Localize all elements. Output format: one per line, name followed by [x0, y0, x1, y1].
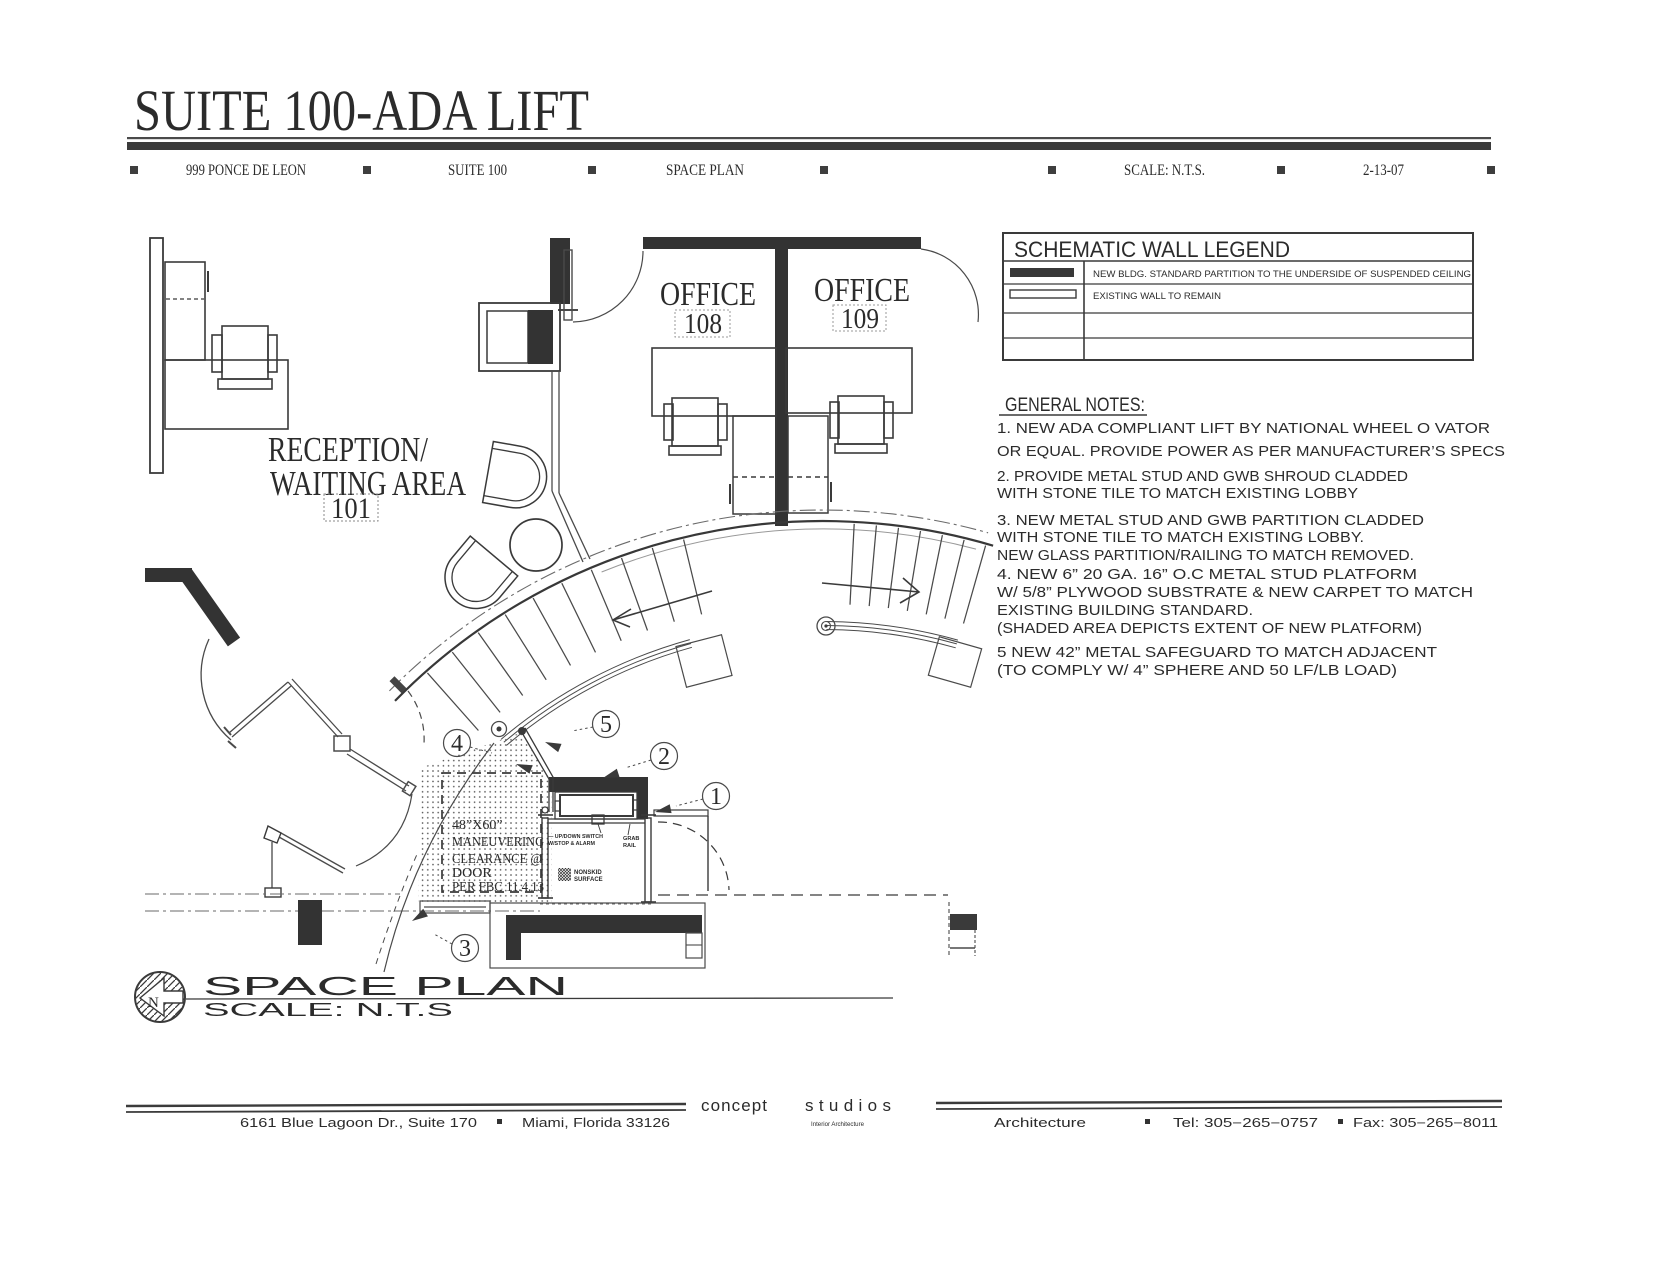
svg-text:WITH STONE TILE TO MATCH: WITH STONE TILE TO MATCH EXISTING LOBBY [997, 486, 1358, 502]
svg-text:2-13-07: 2-13-07 [1363, 162, 1404, 179]
svg-text:3: 3 [459, 936, 471, 962]
svg-text:RAIL: RAIL [623, 843, 637, 849]
svg-text:101: 101 [331, 492, 371, 525]
svg-text:SPACE PLAN: SPACE PLAN [666, 162, 744, 179]
svg-text:Tel: 305−265−0757: Tel: 305−265−0757 [1173, 1116, 1318, 1130]
svg-text:PER FBC 11.4.13: PER FBC 11.4.13 [452, 880, 544, 895]
svg-text:W/STOP & ALARM: W/STOP & ALARM [548, 841, 595, 847]
svg-text:Interior Architecture: Interior Architecture [811, 1121, 864, 1128]
svg-text:(SHADED AREA DEPICTS EXTENT: (SHADED AREA DEPICTS EXTENT OF NEW PLATF… [997, 621, 1422, 637]
svg-text:999 PONCE DE LEON: 999 PONCE DE LEON [186, 162, 306, 179]
svg-text:W/ 5/8” PLYWOOD SUBSTRATE: W/ 5/8” PLYWOOD SUBSTRATE & NEW CARPET T… [997, 585, 1473, 601]
svg-text:concept: concept [701, 1096, 771, 1115]
svg-text:OR EQUAL. PROVIDE POWER AS: OR EQUAL. PROVIDE POWER AS PER MANUFACTU… [997, 444, 1505, 460]
svg-text:SUITE 100: SUITE 100 [448, 162, 507, 179]
svg-text:108: 108 [684, 308, 722, 340]
svg-text:2: 2 [658, 744, 670, 770]
svg-text:SURFACE: SURFACE [574, 877, 603, 883]
svg-text:WITH STONE TILE TO MATCH: WITH STONE TILE TO MATCH EXISTING LOBBY. [997, 530, 1364, 546]
svg-text:NONSKID: NONSKID [574, 870, 602, 876]
svg-text:SUITE 100-ADA LIFT: SUITE 100-ADA LIFT [134, 78, 589, 143]
svg-text:2. PROVIDE METAL STUD AN: 2. PROVIDE METAL STUD AND GWB SHROUD CLA… [997, 469, 1408, 485]
svg-text:EXISTING BUILDING STANDARD.: EXISTING BUILDING STANDARD. [997, 603, 1253, 619]
svg-text:1: 1 [710, 784, 722, 810]
svg-text:EXISTING WALL TO REMAIN: EXISTING WALL TO REMAIN [1093, 291, 1221, 302]
svg-text:SCALE: N.T.S: SCALE: N.T.S [203, 1000, 453, 1020]
svg-text:MANEUVERING: MANEUVERING [452, 835, 544, 850]
svg-text:NEW GLASS PARTITION/RAILING: NEW GLASS PARTITION/RAILING TO MATCH REM… [997, 548, 1414, 564]
svg-text:CLEARANCE @: CLEARANCE @ [452, 852, 542, 867]
svg-text:48”X60”: 48”X60” [452, 818, 503, 833]
svg-text:Miami, Florida 33126: Miami, Florida 33126 [522, 1116, 670, 1130]
svg-text:5 NEW 42” METAL SAFEGUAR: 5 NEW 42” METAL SAFEGUARD TO MATCH ADJAC… [997, 645, 1437, 661]
svg-text:5: 5 [600, 712, 612, 738]
svg-text:SPACE PLAN: SPACE PLAN [203, 971, 568, 1001]
svg-text:6161 Blue Lagoon Dr., Suit: 6161 Blue Lagoon Dr., Suite 170 [240, 1116, 477, 1130]
svg-text:Fax: 305−265−8011: Fax: 305−265−8011 [1353, 1116, 1498, 1130]
svg-text:GENERAL NOTES:: GENERAL NOTES: [1005, 395, 1145, 416]
svg-text:109: 109 [841, 303, 879, 335]
svg-text:studios: studios [805, 1096, 897, 1115]
svg-text:SCALE: N.T.S.: SCALE: N.T.S. [1124, 162, 1205, 179]
svg-text:(TO COMPLY W/ 4” SPHERE A: (TO COMPLY W/ 4” SPHERE AND 50 LF/LB LOA… [997, 663, 1397, 679]
svg-text:1. NEW ADA COMPLIANT LIFT: 1. NEW ADA COMPLIANT LIFT BY NATIONAL WH… [997, 421, 1490, 437]
svg-text:NEW BLDG. STANDARD PARTITIO: NEW BLDG. STANDARD PARTITION TO THE UNDE… [1093, 269, 1471, 280]
svg-text:3. NEW METAL STUD AND G: 3. NEW METAL STUD AND GWB PARTITION CLAD… [997, 513, 1424, 529]
svg-text:DOOR: DOOR [452, 866, 492, 881]
svg-text:GRAB: GRAB [623, 836, 639, 842]
svg-text:— UP/DOWN SWITCH: — UP/DOWN SWITCH [548, 834, 603, 840]
svg-text:4. NEW 6” 20 GA. 16” O: 4. NEW 6” 20 GA. 16” O.C METAL STUD PLAT… [997, 567, 1417, 583]
svg-text:SCHEMATIC WALL LEGEND: SCHEMATIC WALL LEGEND [1014, 237, 1290, 262]
svg-text:Architecture: Architecture [994, 1116, 1086, 1130]
svg-text:4: 4 [451, 731, 463, 757]
svg-text:N: N [148, 995, 159, 1011]
